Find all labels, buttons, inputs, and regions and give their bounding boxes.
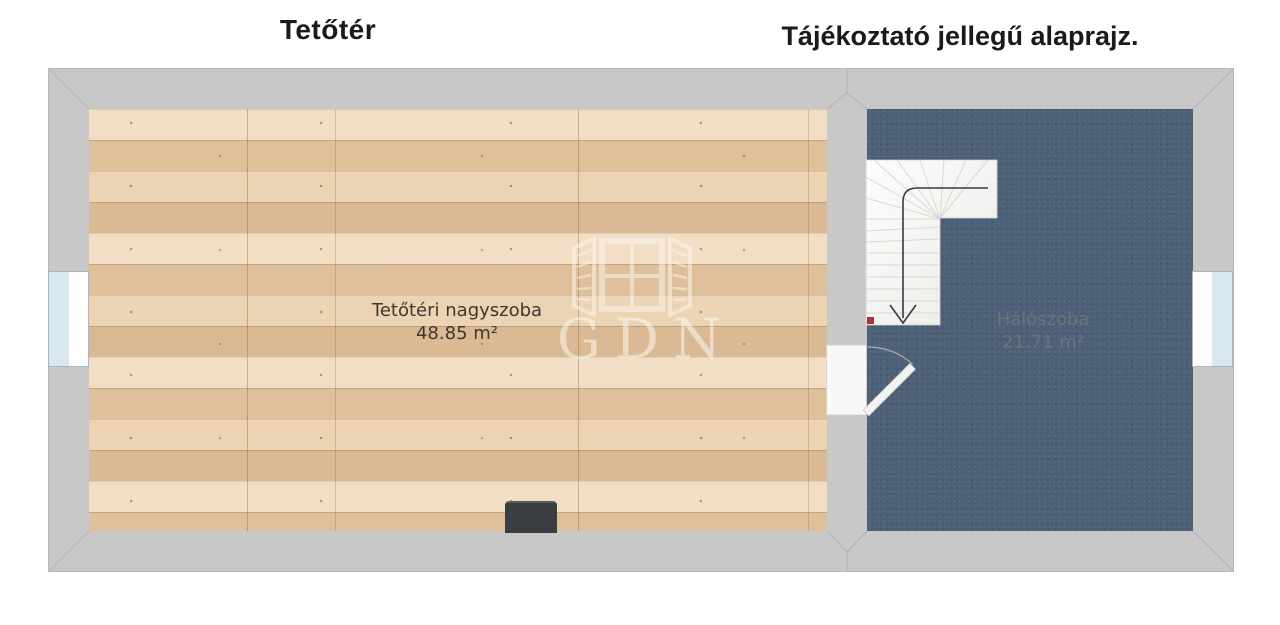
window-right-wall-icon (1192, 271, 1233, 367)
stove-object-icon (505, 501, 557, 533)
window-sill-pane (69, 272, 88, 366)
gdn-window-logo-icon (570, 236, 694, 318)
room-label-attic-great-room: Tetőtéri nagyszoba 48.85 m² (332, 299, 582, 345)
room-name: Hálószoba (933, 308, 1153, 331)
room-area: 48.85 m² (332, 322, 582, 345)
window-glass-pane (49, 272, 69, 366)
page-title-disclaimer: Tájékoztató jellegű alaprajz. (760, 21, 1160, 52)
floor-plan-page: Tetőtér Tájékoztató jellegű alaprajz. (0, 0, 1280, 625)
room-name: Tetőtéri nagyszoba (332, 299, 582, 322)
window-sill-pane (1193, 272, 1212, 366)
page-title-level: Tetőtér (228, 14, 428, 46)
room-label-bedroom: Hálószoba 21.71 m² (933, 308, 1153, 354)
window-left-wall-icon (48, 271, 89, 367)
window-glass-pane (1212, 272, 1232, 366)
room-area: 21.71 m² (933, 331, 1153, 354)
